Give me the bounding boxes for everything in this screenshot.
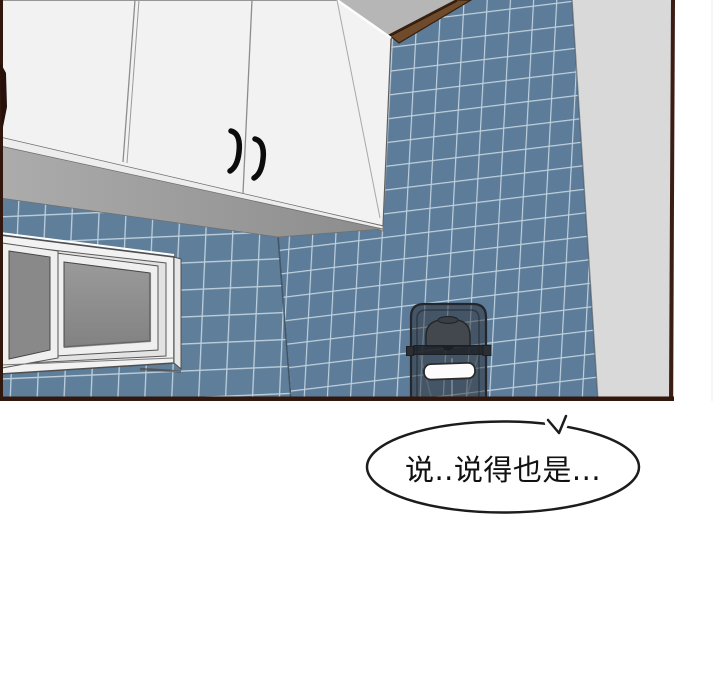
cabinet — [0, 0, 391, 237]
window — [0, 233, 181, 374]
kitchen-panel — [0, 0, 674, 401]
speech-bubble: 说..说得也是... — [367, 416, 639, 513]
page-faint-line — [712, 0, 713, 401]
trash-bin-tab-left — [407, 347, 414, 356]
comic-page: 说..说得也是... — [0, 0, 720, 700]
trash-bin-lid-knob — [438, 317, 458, 324]
trash-bin-hinge-bar — [414, 346, 483, 355]
trash-bin-tab-right — [483, 346, 491, 356]
window-casing — [174, 257, 181, 369]
window-glass — [9, 251, 50, 359]
trash-bin — [407, 304, 492, 401]
panel-border-left — [0, 0, 3, 401]
comic-panel-art: 说..说得也是... — [0, 0, 720, 700]
panel-border-bottom — [0, 397, 674, 402]
window-glass — [64, 262, 150, 347]
trash-bin-label — [424, 363, 476, 380]
speech-text: 说..说得也是... — [405, 453, 601, 487]
